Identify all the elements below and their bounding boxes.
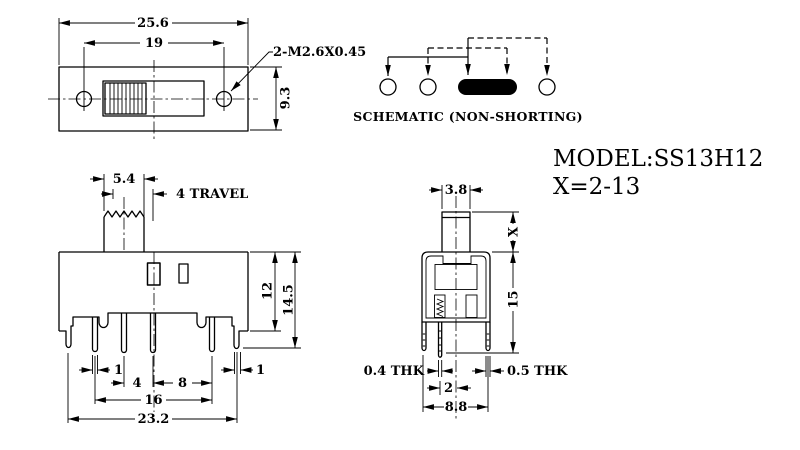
drawing-canvas: 25.6 19 9.3 2-M2.6X0.45: [0, 0, 800, 450]
dim-side-height: 15: [507, 290, 522, 308]
contact-spring: [437, 299, 443, 317]
front-pin-1: [93, 317, 98, 352]
dim-front-leg-width: 1: [256, 363, 265, 378]
dim-side-leg-thickness: 0.5 THK: [507, 364, 568, 379]
schematic-view: SCHEMATIC (NON-SHORTING): [353, 38, 583, 124]
dim-side-pin-to-center: 2: [444, 381, 453, 396]
schematic-caption: SCHEMATIC (NON-SHORTING): [353, 109, 583, 124]
model-number-label: MODEL:SS13H12: [553, 146, 763, 172]
schematic-common-contact: [458, 79, 517, 95]
schematic-terminal-4: [539, 79, 555, 95]
dim-front-pitch-small: 4: [132, 376, 141, 391]
front-pin-2: [122, 313, 127, 353]
x-range-label: X=2-13: [553, 174, 640, 200]
front-view: 5.4 4 TRAVEL 12 14.5 1 4 8: [59, 172, 301, 427]
dim-front-pin-span: 16: [144, 393, 162, 408]
side-view: 3.8 X 15 0.4 THK 0.5 THK 2: [364, 183, 569, 420]
front-view-body-outline: [59, 252, 248, 353]
front-pin-4: [210, 317, 215, 352]
drawing-sheet: 25.6 19 9.3 2-M2.6X0.45: [0, 0, 800, 450]
front-pin-3: [151, 313, 156, 353]
dim-front-height-to-leg: 14.5: [282, 284, 297, 316]
dim-side-knob-depth: 3.8: [445, 183, 468, 198]
top-view: 25.6 19 9.3 2-M2.6X0.45: [48, 16, 366, 139]
title-block: MODEL:SS13H12 X=2-13: [553, 146, 763, 200]
top-view-centerlines: [48, 60, 258, 139]
dim-top-height: 9.3: [279, 87, 294, 110]
dim-top-hole-spacing: 19: [145, 36, 163, 51]
dim-side-leg-span: 8.8: [445, 400, 468, 415]
dim-front-knob-width: 5.4: [113, 172, 136, 187]
front-view-dimensions: 5.4 4 TRAVEL 12 14.5 1 4 8: [68, 172, 301, 427]
thread-callout-label: 2-M2.6X0.45: [273, 45, 366, 60]
dim-front-pin-width: 1: [114, 363, 123, 378]
dim-front-height-to-base: 12: [261, 282, 276, 300]
schematic-terminal-2: [420, 79, 436, 95]
dim-side-actuator-height: X: [507, 226, 522, 237]
dim-front-overall-width: 23.2: [138, 412, 170, 427]
dim-front-travel: 4 TRAVEL: [176, 187, 248, 202]
dim-front-pitch-large: 8: [178, 376, 187, 391]
side-center-pin: [439, 322, 442, 357]
dim-side-pin-thickness: 0.4 THK: [364, 364, 425, 379]
dim-top-overall-width: 25.6: [137, 16, 169, 31]
schematic-terminal-1: [380, 79, 396, 95]
